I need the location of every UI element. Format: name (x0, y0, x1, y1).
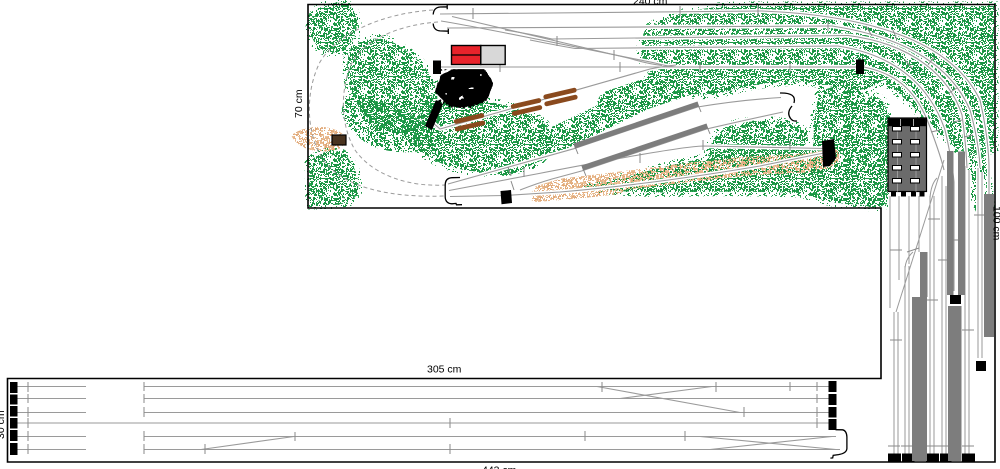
svg-text:30 cm: 30 cm (0, 410, 7, 439)
svg-text:305 cm: 305 cm (427, 364, 462, 376)
svg-text:443 cm: 443 cm (482, 465, 517, 469)
svg-text:70 cm: 70 cm (293, 89, 305, 118)
svg-text:100 cm: 100 cm (991, 206, 1000, 241)
svg-text:240 cm: 240 cm (633, 0, 668, 8)
